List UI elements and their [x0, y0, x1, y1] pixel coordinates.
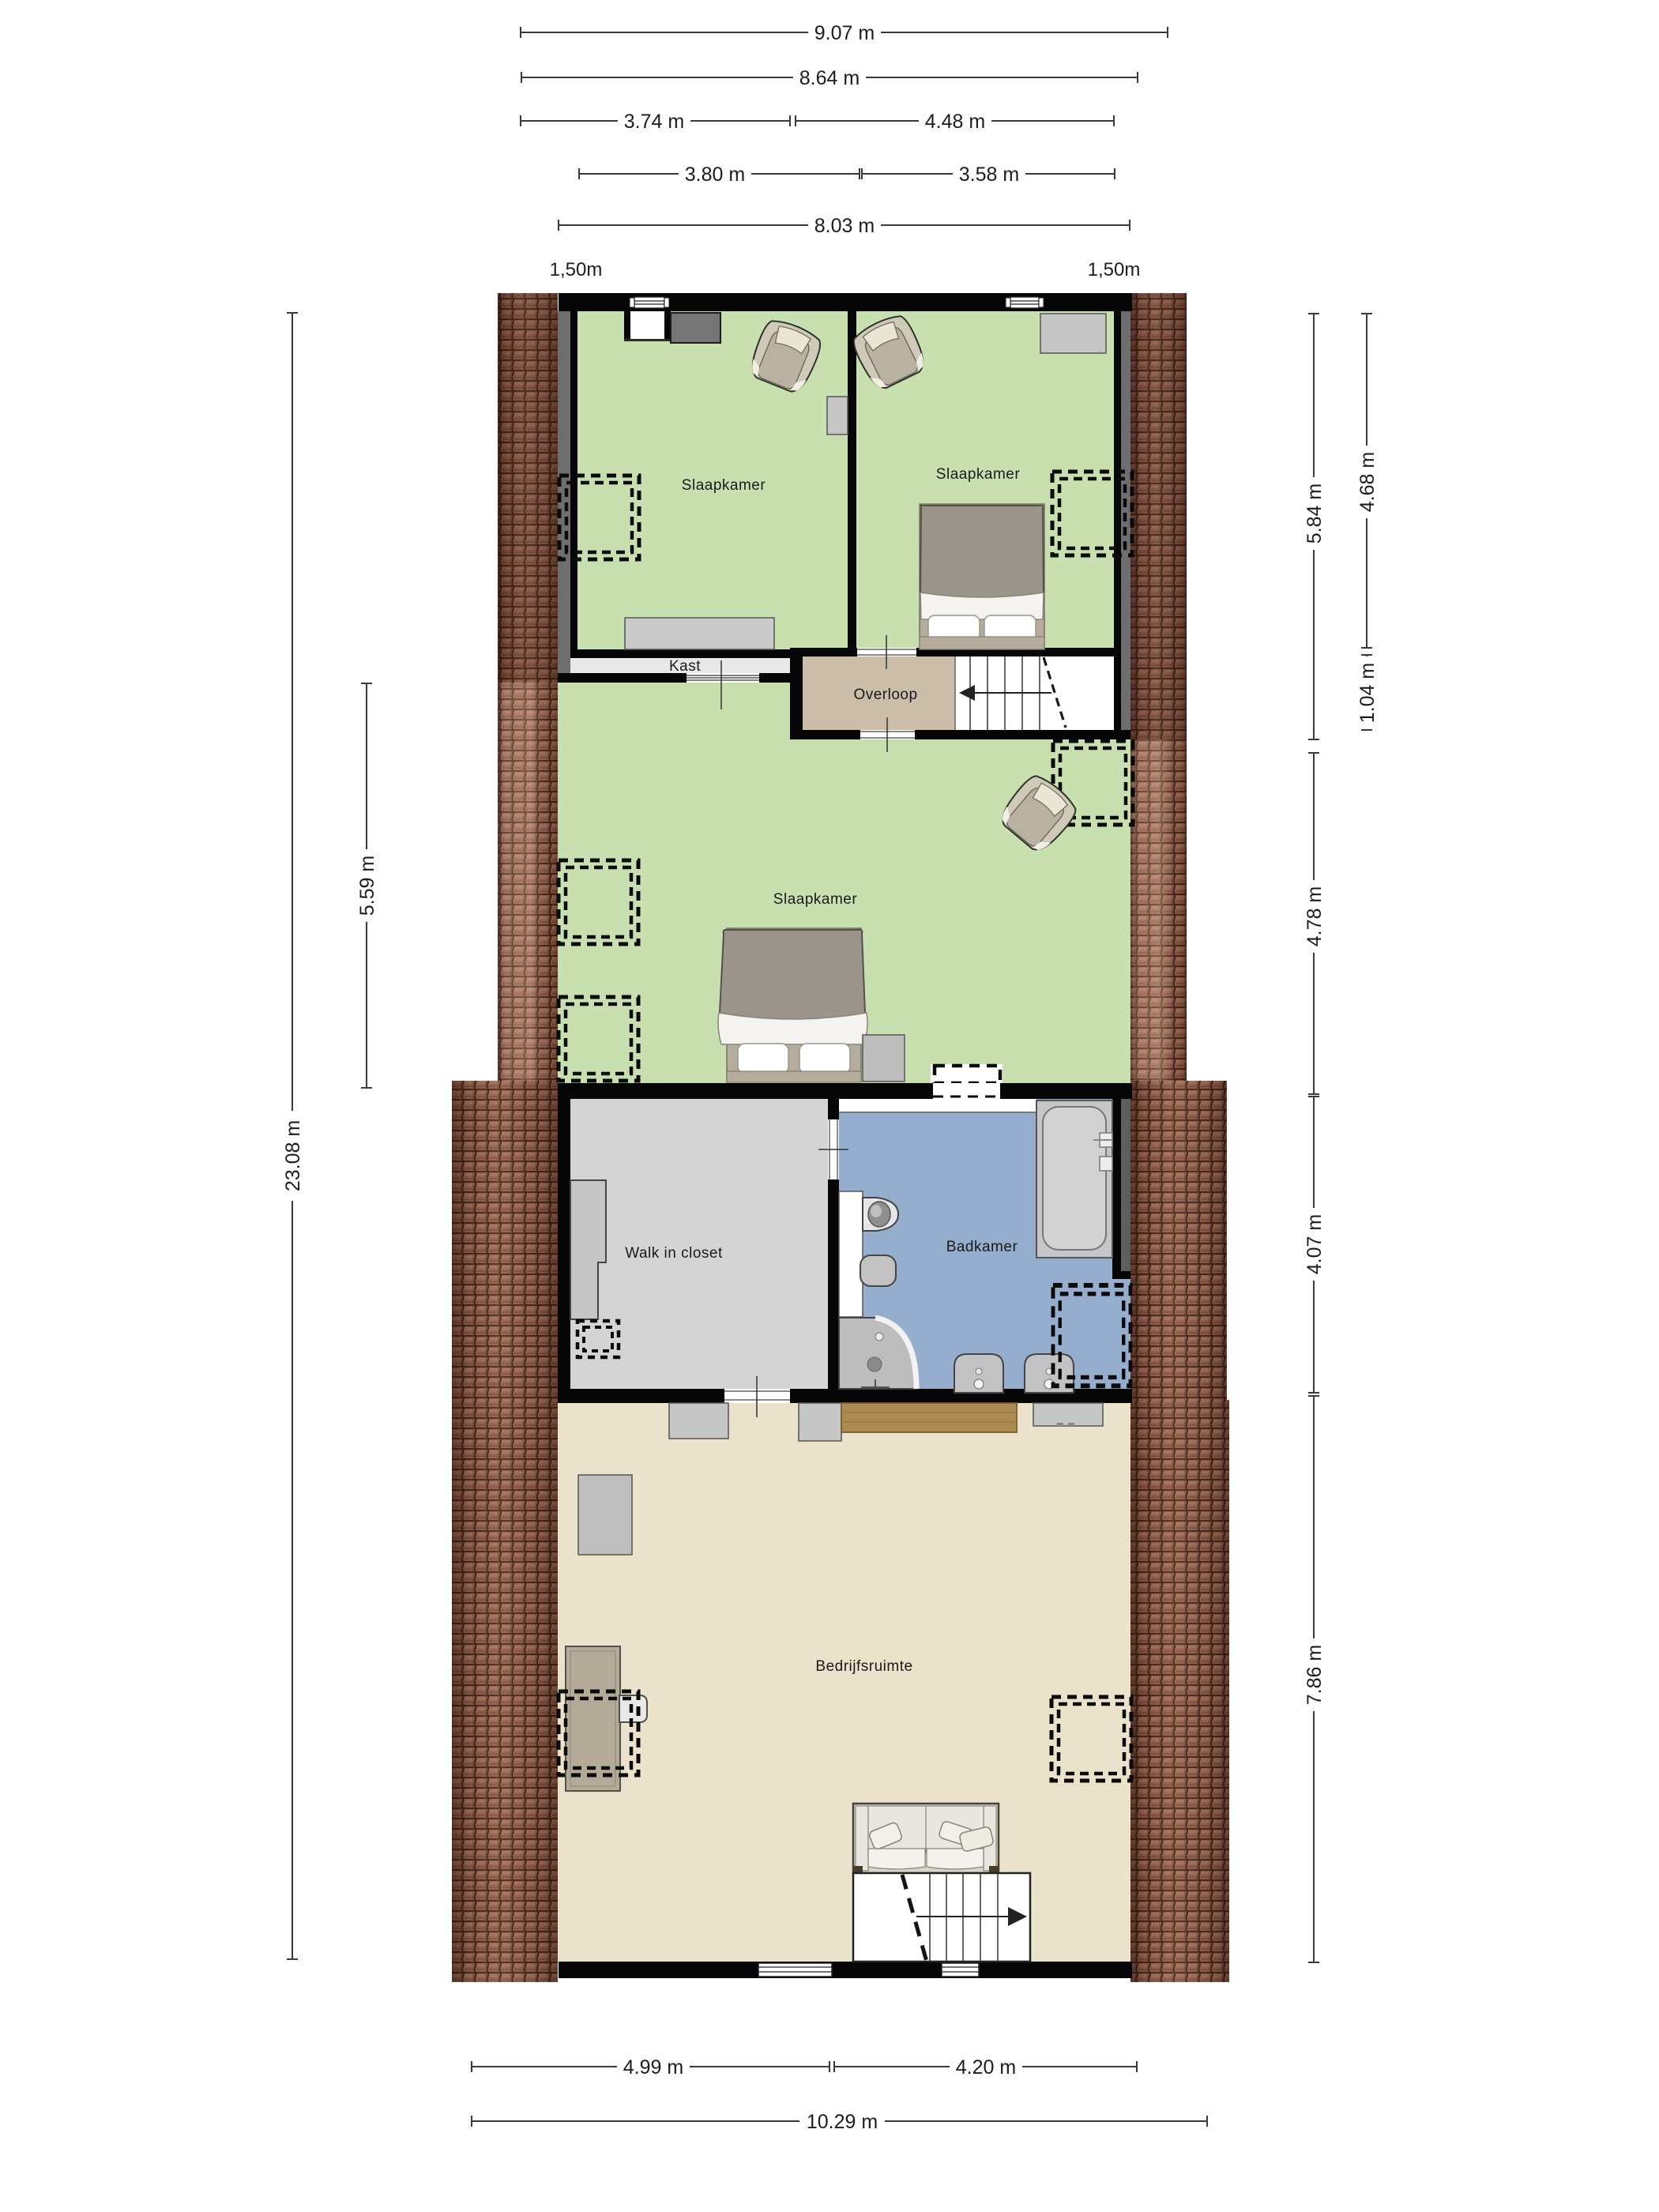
svg-text:4.07 m: 4.07 m [1303, 1214, 1326, 1274]
svg-text:8.03 m: 8.03 m [814, 215, 875, 237]
svg-text:Walk in closet: Walk in closet [625, 1245, 723, 1262]
svg-text:5.84 m: 5.84 m [1303, 483, 1326, 544]
svg-text:Badkamer: Badkamer [946, 1239, 1018, 1255]
svg-text:8.64 m: 8.64 m [799, 67, 860, 89]
svg-text:10.29 m: 10.29 m [807, 2111, 878, 2133]
svg-text:4.48 m: 4.48 m [925, 111, 985, 133]
svg-text:9.07 m: 9.07 m [814, 22, 875, 44]
svg-text:4.68 m: 4.68 m [1356, 452, 1379, 512]
svg-text:5.59 m: 5.59 m [356, 856, 378, 916]
svg-text:7.86 m: 7.86 m [1303, 1645, 1326, 1705]
svg-text:Bedrijfsruimte: Bedrijfsruimte [815, 1658, 912, 1675]
svg-text:3.80 m: 3.80 m [685, 164, 745, 186]
svg-text:Kast: Kast [669, 658, 701, 675]
svg-text:Slaapkamer: Slaapkamer [682, 477, 766, 494]
svg-text:4.78 m: 4.78 m [1303, 886, 1326, 946]
svg-text:Overloop: Overloop [853, 687, 917, 703]
svg-text:1.04 m: 1.04 m [1356, 663, 1379, 723]
svg-text:4.20 m: 4.20 m [956, 2056, 1016, 2078]
svg-text:4.99 m: 4.99 m [623, 2056, 683, 2078]
svg-text:3.74 m: 3.74 m [624, 111, 684, 133]
svg-text:Slaapkamer: Slaapkamer [936, 466, 1021, 483]
svg-text:Slaapkamer: Slaapkamer [773, 891, 858, 908]
svg-text:3.58 m: 3.58 m [959, 164, 1019, 186]
svg-text:1,50m: 1,50m [1088, 259, 1141, 280]
svg-text:1,50m: 1,50m [550, 259, 603, 280]
svg-text:23.08 m: 23.08 m [282, 1120, 304, 1191]
